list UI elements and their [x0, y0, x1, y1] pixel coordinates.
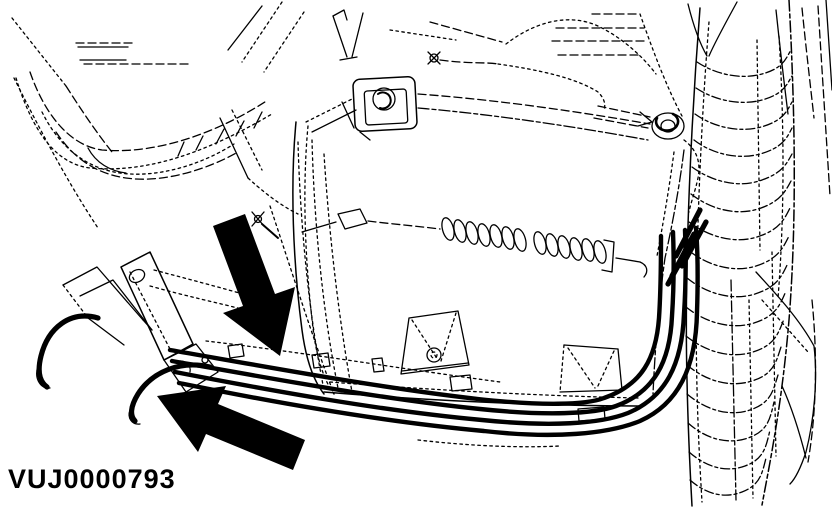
line-art-canvas	[0, 0, 832, 528]
solid-arrow-down-icon	[213, 214, 295, 356]
corrugated-conduit	[440, 216, 647, 277]
tray-clip-brackets	[401, 311, 622, 392]
ribbed-panel	[686, 0, 816, 506]
solid-arrow-left-icon	[157, 386, 305, 470]
screw-detail	[252, 212, 278, 238]
figure-caption: VUJ0000793	[8, 464, 176, 495]
technical-illustration-figure: VUJ0000793	[0, 0, 832, 528]
body-structure-sketch	[12, 0, 832, 228]
mounting-bracket	[306, 76, 417, 140]
